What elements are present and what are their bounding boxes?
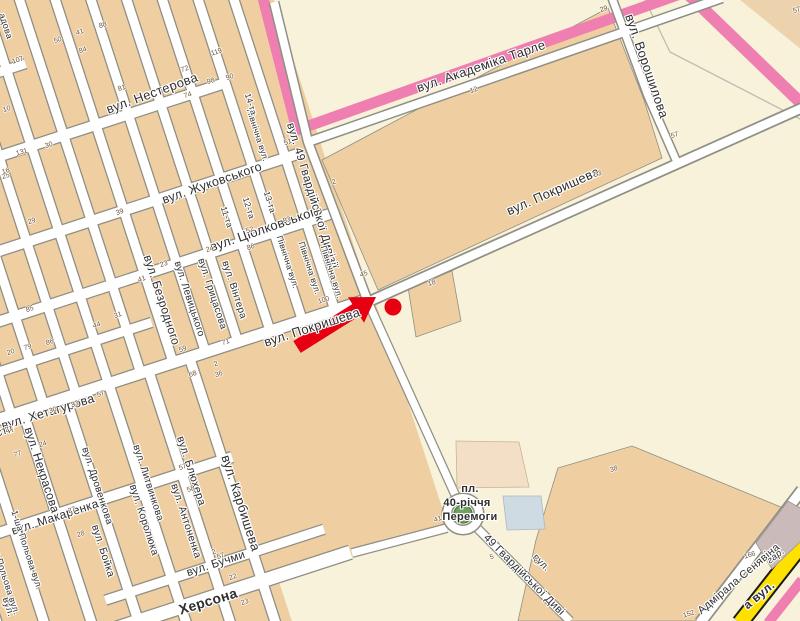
- map-canvas[interactable]: вул. Нестеровавул. Жуковськоговул. Ціолк…: [0, 0, 800, 621]
- light-block: [456, 441, 529, 488]
- red-dot-marker: [385, 299, 402, 316]
- building-blue: [503, 496, 545, 530]
- map-image[interactable]: [0, 0, 800, 621]
- roundabout-green-island: [454, 505, 472, 523]
